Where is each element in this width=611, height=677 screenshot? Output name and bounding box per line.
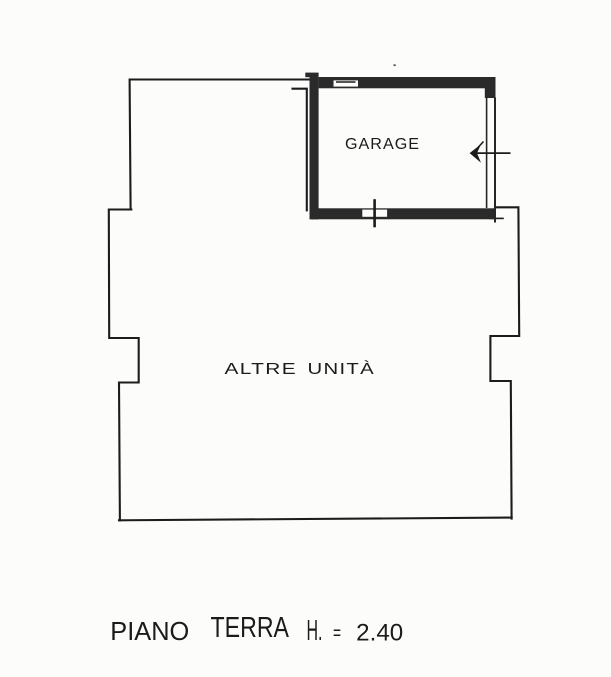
svg-text:GARAGE: GARAGE bbox=[345, 136, 420, 153]
svg-text:UNITÀ: UNITÀ bbox=[308, 361, 376, 378]
svg-text:2.40: 2.40 bbox=[356, 620, 403, 647]
svg-text:=: = bbox=[333, 623, 341, 645]
svg-text:ALTRE: ALTRE bbox=[225, 361, 298, 378]
svg-text:H.: H. bbox=[307, 615, 323, 647]
svg-text:TERRA: TERRA bbox=[211, 612, 290, 644]
svg-text:PIANO: PIANO bbox=[110, 616, 189, 646]
